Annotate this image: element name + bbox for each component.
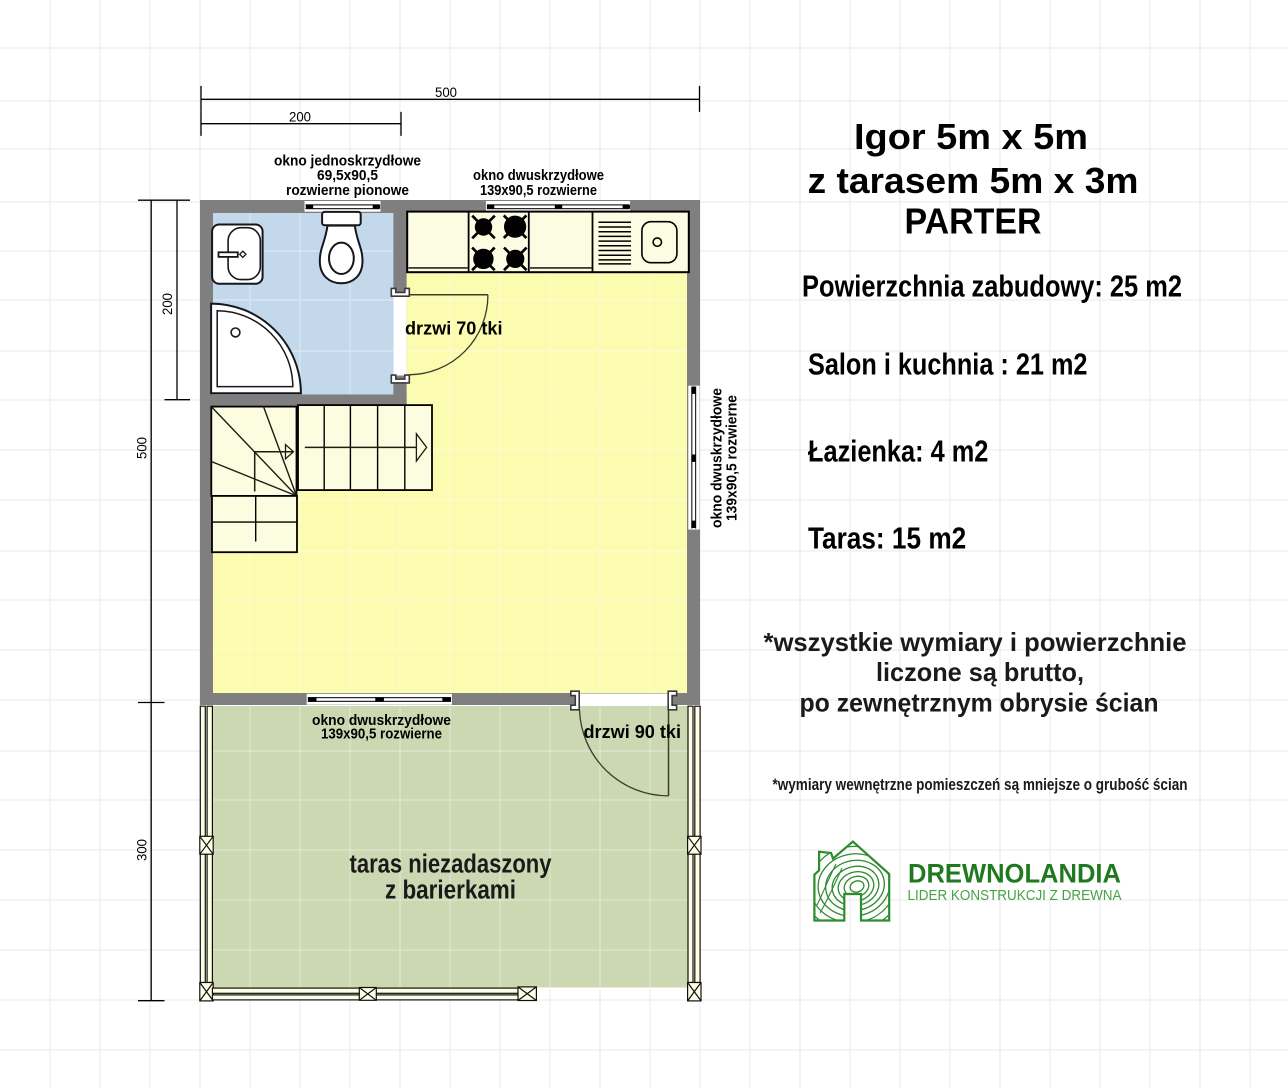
- svg-text:PARTER: PARTER: [905, 201, 1042, 242]
- svg-text:drzwi 90 tki: drzwi 90 tki: [584, 722, 682, 742]
- svg-text:z tarasem 5m x 3m: z tarasem 5m x 3m: [808, 160, 1139, 201]
- svg-text:taras niezadaszony: taras niezadaszony: [350, 851, 553, 879]
- svg-text:500: 500: [134, 437, 150, 459]
- svg-text:z barierkami: z barierkami: [385, 877, 516, 905]
- svg-text:*wymiary wewnętrzne pomieszcze: *wymiary wewnętrzne pomieszczeń są mniej…: [773, 776, 1188, 794]
- svg-text:drzwi 70 tki: drzwi 70 tki: [405, 319, 503, 339]
- svg-text:po zewnętrznym obrysie ścian: po zewnętrznym obrysie ścian: [800, 688, 1159, 718]
- svg-text:Salon i kuchnia : 21 m2: Salon i kuchnia : 21 m2: [808, 348, 1088, 382]
- svg-text:rozwierne pionowe: rozwierne pionowe: [286, 182, 409, 199]
- svg-text:139x90,5 rozwierne: 139x90,5 rozwierne: [321, 725, 442, 742]
- svg-text:139x90,5 rozwierne: 139x90,5 rozwierne: [724, 395, 741, 521]
- svg-text:Powierzchnia zabudowy: 25 m2: Powierzchnia zabudowy: 25 m2: [802, 270, 1182, 304]
- svg-text:DREWNOLANDIA: DREWNOLANDIA: [908, 859, 1121, 889]
- svg-text:LIDER KONSTRUKCJI Z DREWNA: LIDER KONSTRUKCJI Z DREWNA: [908, 888, 1122, 904]
- svg-text:liczone są brutto,: liczone są brutto,: [876, 657, 1084, 687]
- svg-text:500: 500: [435, 84, 457, 100]
- svg-text:Igor 5m x 5m: Igor 5m x 5m: [854, 116, 1088, 157]
- svg-text:Taras: 15 m2: Taras: 15 m2: [808, 522, 966, 556]
- svg-text:Łazienka: 4 m2: Łazienka: 4 m2: [808, 435, 988, 469]
- svg-text:139x90,5 rozwierne: 139x90,5 rozwierne: [480, 182, 597, 199]
- svg-text:200: 200: [159, 293, 175, 315]
- svg-text:*wszystkie wymiary i powierzch: *wszystkie wymiary i powierzchnie: [764, 627, 1187, 657]
- svg-text:300: 300: [134, 839, 150, 861]
- svg-text:200: 200: [289, 109, 311, 125]
